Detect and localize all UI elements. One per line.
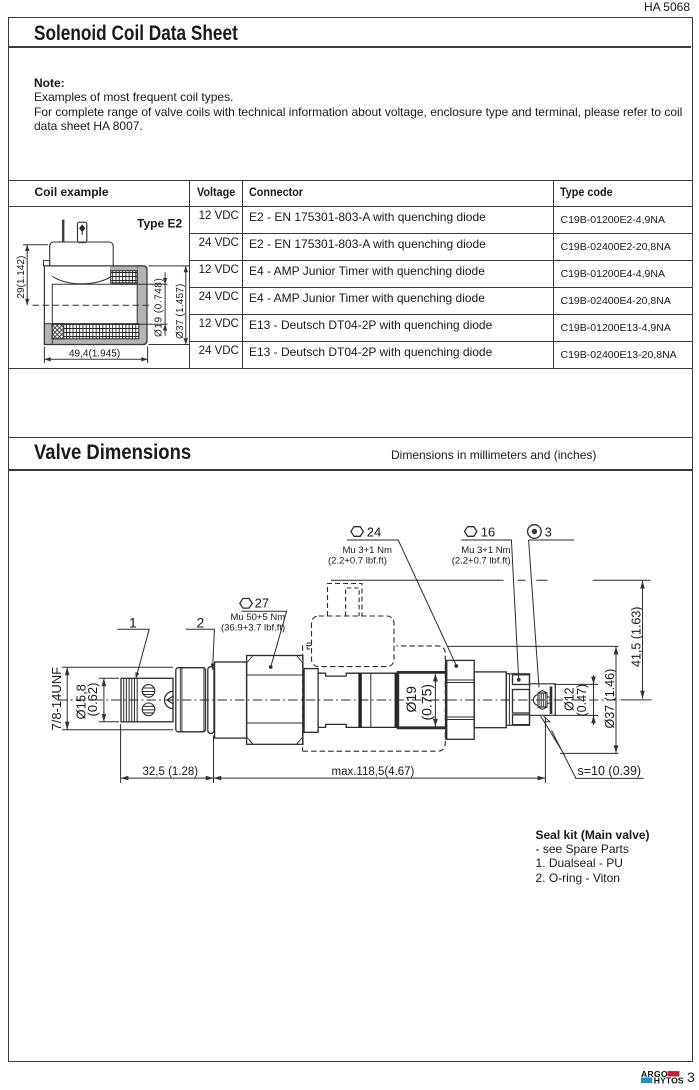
svg-text:Mu 50+5 Nm: Mu 50+5 Nm [231, 612, 286, 623]
svg-text:(0.62): (0.62) [85, 683, 100, 717]
svg-text:41,5 (1.63): 41,5 (1.63) [629, 607, 643, 667]
svg-text:2: 2 [197, 614, 205, 630]
svg-text:max.118,5(4.67): max.118,5(4.67) [332, 766, 415, 778]
svg-text:(2.2+0.7 lbf.ft): (2.2+0.7 lbf.ft) [328, 555, 387, 566]
svg-text:(0.75): (0.75) [419, 684, 435, 721]
svg-text:49,4(1.945): 49,4(1.945) [69, 349, 120, 360]
svg-text:Ø37 (1.457): Ø37 (1.457) [175, 283, 186, 339]
svg-text:3: 3 [545, 525, 552, 540]
svg-text:(36.9+3.7 lbf.ft): (36.9+3.7 lbf.ft) [221, 623, 285, 634]
svg-text:24: 24 [367, 525, 381, 540]
svg-text:s=10 (0.39): s=10 (0.39) [578, 764, 642, 778]
svg-text:(0.47): (0.47) [575, 684, 589, 717]
svg-text:(2.2+0.7 lbf.ft): (2.2+0.7 lbf.ft) [452, 555, 511, 566]
svg-text:Ø37 (1.46): Ø37 (1.46) [603, 669, 617, 729]
svg-text:HYTOS: HYTOS [653, 1075, 682, 1085]
svg-text:16: 16 [481, 525, 495, 540]
svg-text:7/8-14UNF: 7/8-14UNF [49, 667, 64, 731]
svg-text:Type E2: Type E2 [137, 217, 182, 231]
svg-text:32,5 (1.28): 32,5 (1.28) [143, 766, 199, 778]
svg-text:Ø19: Ø19 [403, 686, 419, 713]
svg-text:Ø19 (0.748): Ø19 (0.748) [154, 278, 165, 337]
svg-text:27: 27 [255, 596, 269, 611]
svg-text:29(1.142): 29(1.142) [16, 256, 27, 299]
svg-text:1: 1 [129, 614, 137, 630]
